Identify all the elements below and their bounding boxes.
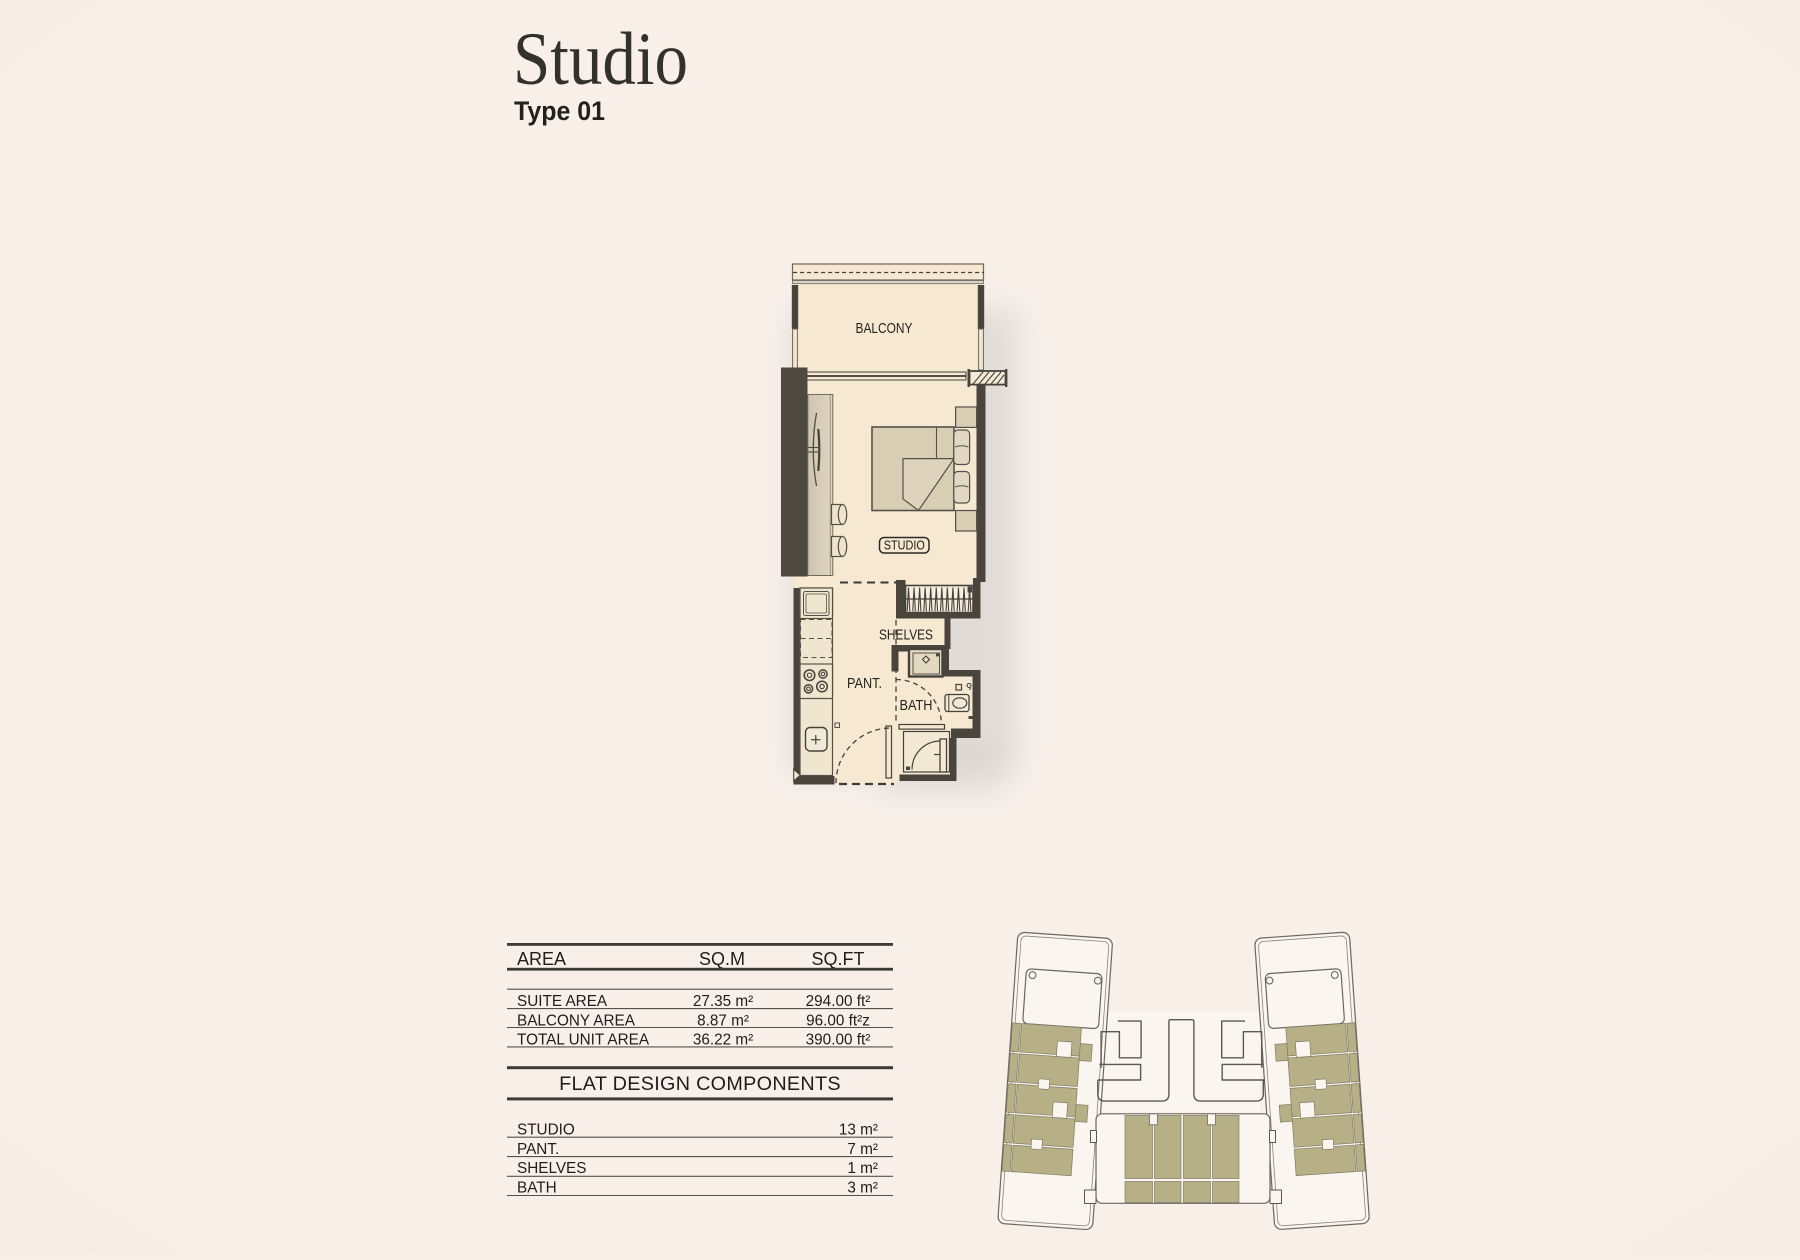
svg-text:SHELVES: SHELVES (879, 627, 933, 644)
svg-text:STUDIO: STUDIO (517, 1121, 575, 1138)
svg-text:390.00 ft²: 390.00 ft² (806, 1032, 871, 1049)
svg-text:8.87 m²: 8.87 m² (697, 1012, 749, 1029)
svg-text:13 m²: 13 m² (839, 1121, 878, 1138)
svg-text:SQ.FT: SQ.FT (812, 949, 865, 969)
svg-text:SHELVES: SHELVES (517, 1160, 586, 1177)
svg-text:PANT.: PANT. (847, 675, 882, 692)
svg-text:TOTAL UNIT AREA: TOTAL UNIT AREA (517, 1032, 650, 1049)
svg-text:FLAT DESIGN COMPONENTS: FLAT DESIGN COMPONENTS (559, 1073, 841, 1095)
svg-text:Type 01: Type 01 (514, 96, 605, 126)
svg-text:BALCONY: BALCONY (856, 320, 913, 337)
svg-text:AREA: AREA (517, 949, 566, 969)
svg-text:SQ.M: SQ.M (699, 949, 745, 969)
svg-text:7 m²: 7 m² (847, 1141, 878, 1158)
svg-text:3 m²: 3 m² (847, 1180, 878, 1197)
svg-text:27.35 m²: 27.35 m² (693, 993, 753, 1010)
svg-text:BALCONY AREA: BALCONY AREA (517, 1012, 636, 1029)
svg-text:1 m²: 1 m² (847, 1160, 878, 1177)
svg-text:36.22 m²: 36.22 m² (693, 1032, 753, 1049)
svg-text:BATH: BATH (517, 1180, 557, 1197)
svg-text:294.00 ft²: 294.00 ft² (806, 993, 871, 1010)
svg-text:Studio: Studio (513, 18, 688, 101)
svg-text:SUITE AREA: SUITE AREA (517, 993, 608, 1010)
svg-text:PANT.: PANT. (517, 1141, 559, 1158)
svg-text:BATH: BATH (900, 697, 933, 714)
svg-text:96.00 ft²z: 96.00 ft²z (806, 1012, 870, 1029)
svg-text:STUDIO: STUDIO (884, 538, 925, 553)
